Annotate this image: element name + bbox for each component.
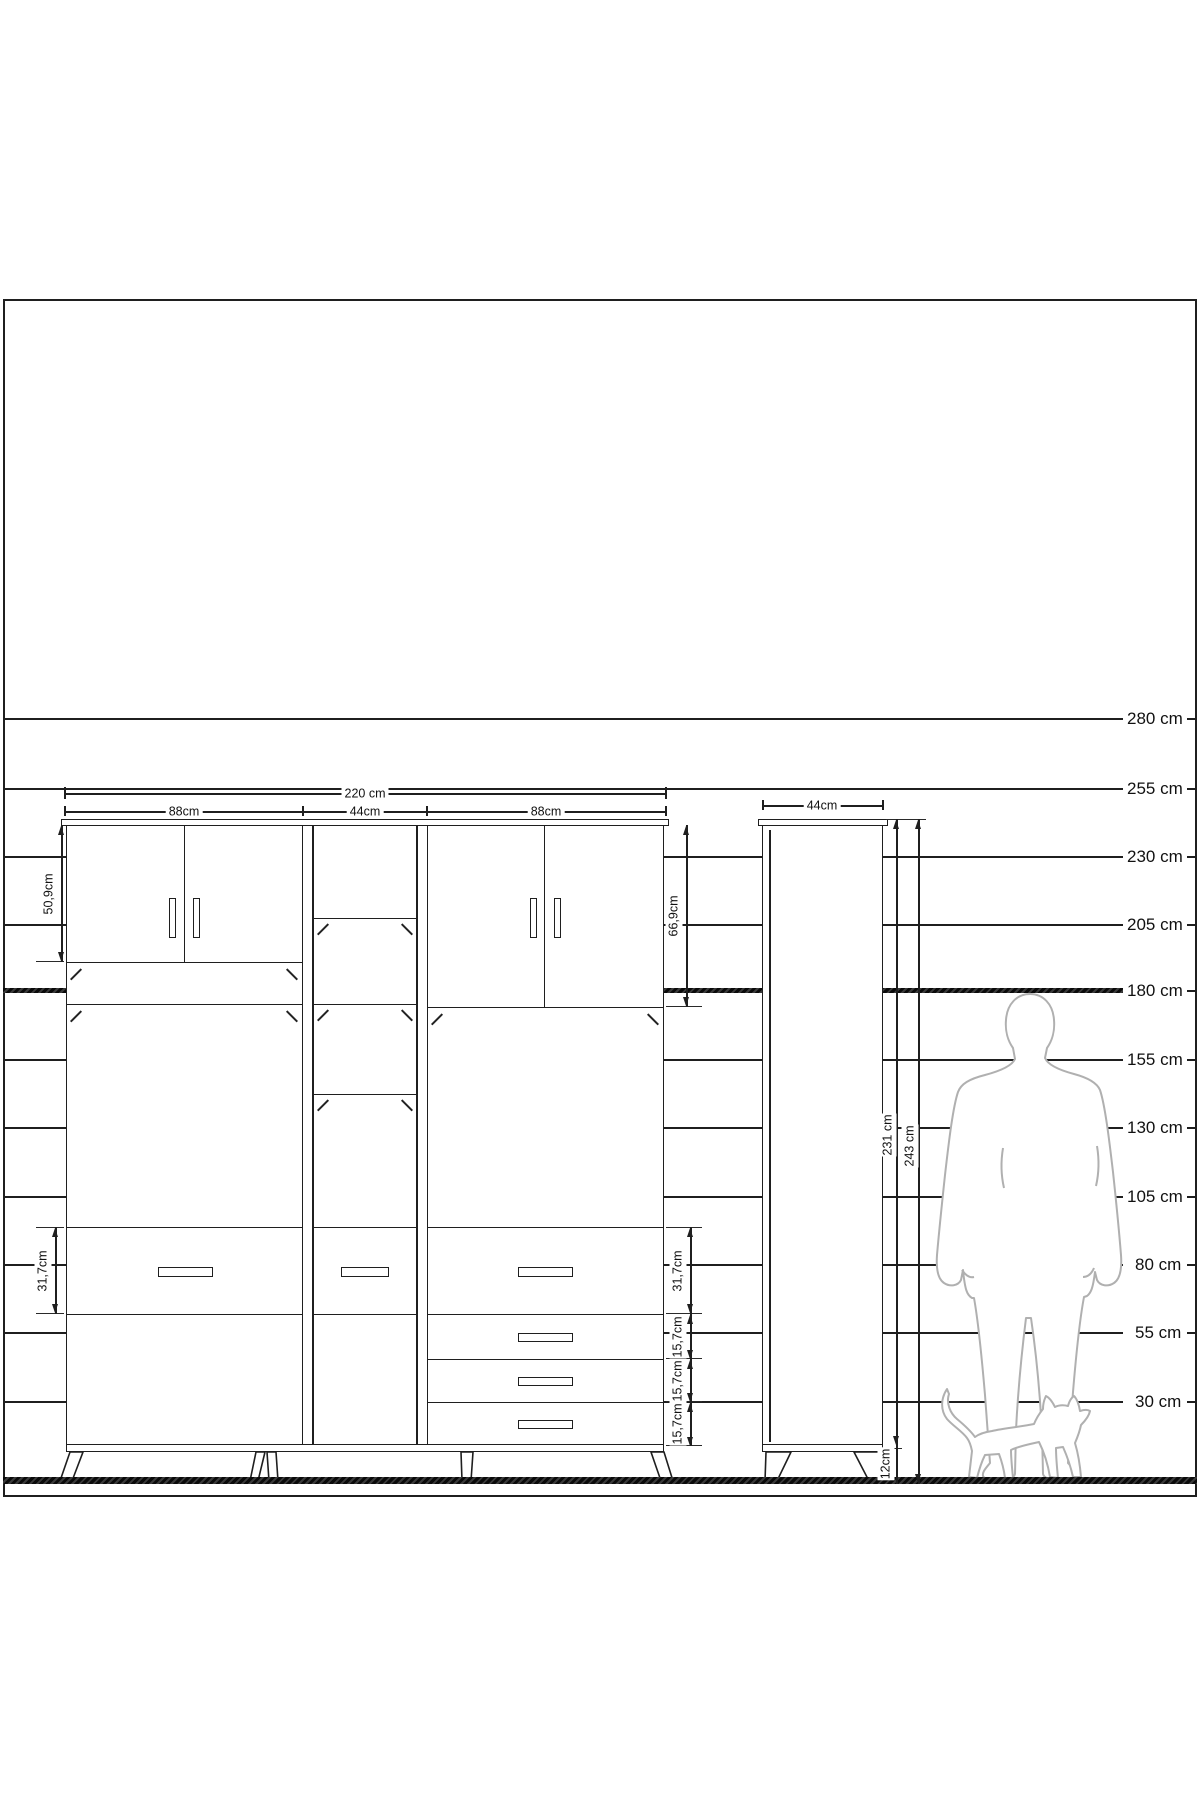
ref-label: 155 cm: [1127, 1051, 1183, 1068]
drawer-handle: [518, 1267, 573, 1277]
ref-line-end: [1187, 1264, 1196, 1266]
ref-line-end: [1187, 856, 1196, 858]
dim-tick: [64, 787, 66, 799]
door-handle: [193, 898, 200, 938]
ref-line-end: [1187, 1127, 1196, 1129]
arrow-up: [58, 826, 64, 835]
arrow-up: [687, 1315, 693, 1324]
arrow-down: [687, 1393, 693, 1402]
dim-tick: [64, 806, 66, 816]
dim-tick: [665, 787, 667, 799]
drawer-handle: [518, 1420, 573, 1429]
main-cabinet-base-band: [66, 1444, 664, 1452]
dim-line-12: [896, 1446, 898, 1484]
drawer-handle: [518, 1333, 573, 1342]
arrow-down: [687, 1304, 693, 1313]
bottom-door-middle: [313, 1314, 417, 1448]
dim-label: 15,7cm: [670, 1360, 687, 1403]
arrow-down: [687, 1437, 693, 1446]
dim-label: 66,9cm: [666, 895, 683, 938]
ref-label: 130 cm: [1127, 1119, 1183, 1136]
dim-tick: [665, 806, 667, 816]
dim-line: [690, 1227, 692, 1314]
arrow-up: [683, 826, 689, 835]
dim-label: 44cm: [347, 806, 384, 819]
dim-label: 31,7cm: [35, 1250, 52, 1293]
dim-label: 88cm: [166, 806, 203, 819]
tall-cabinet-body: [762, 825, 883, 1446]
ref-line: [3, 788, 1123, 790]
arrow-up: [915, 820, 921, 829]
door-handle: [554, 898, 561, 938]
arrow-down: [915, 1474, 921, 1483]
open-shelf-left: [66, 962, 303, 1006]
arrow-down: [683, 997, 689, 1006]
ref-line-end: [1187, 990, 1196, 992]
extension-line: [666, 1313, 702, 1314]
drawer-handle: [341, 1267, 389, 1277]
ref-line-end: [1187, 1059, 1196, 1061]
ref-label: 55 cm: [1135, 1324, 1181, 1341]
dim-label: 31,7cm: [670, 1250, 687, 1293]
dim-tick: [882, 800, 884, 810]
man-silhouette: [937, 994, 1121, 1480]
dim-line: [686, 825, 688, 1007]
dim-line: [690, 1314, 692, 1446]
cubby-1: [313, 825, 417, 920]
arrow-up: [687, 1403, 693, 1412]
jacket-pocket-line: [1096, 1146, 1098, 1186]
extension-line: [36, 961, 64, 962]
arrow-up: [52, 1228, 58, 1237]
cubby-4: [313, 1094, 417, 1229]
bottom-door-left: [66, 1314, 303, 1448]
upper-door-left-1: [66, 825, 186, 964]
dim-line: [55, 1227, 57, 1314]
extension-line: [666, 1227, 702, 1228]
ref-line-end: [1187, 1196, 1196, 1198]
dim-label: 231 cm: [880, 1114, 897, 1157]
cubby-3: [313, 1004, 417, 1096]
technical-drawing-canvas: 280 cm 255 cm 230 cm 205 cm 180 cm 155 c…: [0, 0, 1200, 1800]
drawer-handle: [158, 1267, 213, 1277]
frame-bottom-border: [3, 1495, 1197, 1497]
ref-line-end: [1187, 924, 1196, 926]
dim-label: 88cm: [528, 806, 565, 819]
ref-label: 255 cm: [1127, 780, 1183, 797]
upper-door-left-2: [184, 825, 303, 964]
ref-line: [3, 718, 1123, 720]
upper-door-right-1: [427, 825, 546, 1009]
dim-label: 243 cm: [902, 1125, 919, 1168]
ref-label: 280 cm: [1127, 710, 1183, 727]
dim-label: 12cm: [878, 1448, 895, 1481]
arrow-down: [893, 1436, 899, 1445]
jacket-hem-line: [1083, 1268, 1094, 1277]
extension-line: [36, 1227, 64, 1228]
dim-tick: [762, 800, 764, 810]
arrow-down: [58, 952, 64, 961]
jacket-hem-line: [962, 1270, 974, 1277]
ref-label: 105 cm: [1127, 1188, 1183, 1205]
arrow-down: [687, 1350, 693, 1359]
ref-line-end: [1187, 1401, 1196, 1403]
cubby-2: [313, 918, 417, 1006]
frame-right-border: [1195, 299, 1197, 1496]
dim-label: 15,7cm: [670, 1403, 687, 1446]
arrow-up: [893, 820, 899, 829]
open-compartment-left: [66, 1004, 303, 1229]
ground-line: [3, 1477, 1197, 1484]
jacket-pocket-line: [1002, 1148, 1004, 1188]
extension-line: [36, 1313, 64, 1314]
dim-tick: [426, 806, 428, 816]
ref-label: 180 cm: [1127, 982, 1183, 999]
arrow-up: [687, 1228, 693, 1237]
extension-line: [666, 1006, 702, 1007]
dim-label: 44cm: [804, 800, 841, 813]
ref-label: 205 cm: [1127, 916, 1183, 933]
door-handle: [169, 898, 176, 938]
ref-label: 230 cm: [1127, 848, 1183, 865]
open-compartment-right: [427, 1007, 664, 1229]
ref-label: 80 cm: [1135, 1256, 1181, 1273]
dim-label: 50,9cm: [41, 873, 58, 916]
ref-line-end: [1187, 788, 1196, 790]
tall-cabinet-door-edge: [769, 830, 771, 1442]
dim-label: 15,7cm: [670, 1316, 687, 1359]
frame-left-border: [3, 299, 5, 1496]
dim-line: [61, 825, 63, 962]
ref-line-end: [1187, 718, 1196, 720]
drawer-handle: [518, 1377, 573, 1386]
upper-door-right-2: [544, 825, 664, 1009]
door-handle: [530, 898, 537, 938]
arrow-up: [687, 1360, 693, 1369]
ref-label: 30 cm: [1135, 1393, 1181, 1410]
dim-tick: [302, 806, 304, 816]
frame-top-border: [3, 299, 1197, 301]
arrow-down: [52, 1304, 58, 1313]
dim-label: 220 cm: [342, 788, 389, 801]
ref-line-end: [1187, 1332, 1196, 1334]
tall-cabinet-base-band: [762, 1444, 883, 1452]
